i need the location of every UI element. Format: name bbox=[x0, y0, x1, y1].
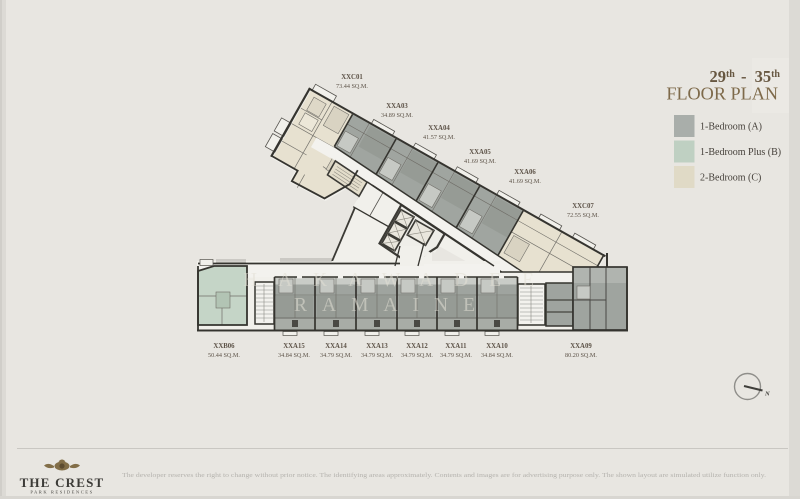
svg-text:XXA05: XXA05 bbox=[469, 149, 491, 156]
svg-text:XXA04: XXA04 bbox=[428, 125, 450, 132]
svg-text:34.79 SQ.M.: 34.79 SQ.M. bbox=[401, 352, 433, 359]
svg-text:PARK RESIDENCES: PARK RESIDENCES bbox=[30, 490, 93, 495]
svg-text:34.84 SQ.M.: 34.84 SQ.M. bbox=[481, 352, 513, 359]
svg-text:XXA10: XXA10 bbox=[486, 343, 508, 350]
svg-text:XXC07: XXC07 bbox=[572, 203, 594, 210]
svg-text:THE CREST: THE CREST bbox=[20, 475, 105, 490]
svg-text:41.69 SQ.M.: 41.69 SQ.M. bbox=[464, 158, 496, 165]
svg-text:1-Bedroom (A): 1-Bedroom (A) bbox=[700, 122, 762, 133]
svg-text:XXA06: XXA06 bbox=[514, 169, 536, 176]
svg-text:50.44 SQ.M.: 50.44 SQ.M. bbox=[208, 352, 240, 359]
svg-text:XXA11: XXA11 bbox=[445, 343, 467, 350]
svg-text:72.55 SQ.M.: 72.55 SQ.M. bbox=[567, 212, 599, 219]
svg-text:2-Bedroom (C): 2-Bedroom (C) bbox=[700, 173, 761, 184]
svg-text:The developer reserves the rig: The developer reserves the right to chan… bbox=[122, 472, 766, 479]
svg-text:41.69 SQ.M.: 41.69 SQ.M. bbox=[509, 178, 541, 185]
svg-text:XXB06: XXB06 bbox=[213, 343, 235, 350]
svg-text:1-Bedroom Plus (B): 1-Bedroom Plus (B) bbox=[700, 147, 781, 158]
svg-text:34.79 SQ.M.: 34.79 SQ.M. bbox=[440, 352, 472, 359]
svg-text:N: N bbox=[764, 391, 770, 398]
svg-text:RAMAINE: RAMAINE bbox=[294, 295, 490, 316]
svg-text:34.89 SQ.M.: 34.89 SQ.M. bbox=[381, 112, 413, 119]
svg-text:XXA03: XXA03 bbox=[386, 103, 408, 110]
svg-text:73.44 SQ.M.: 73.44 SQ.M. bbox=[336, 83, 368, 90]
svg-text:XXA15: XXA15 bbox=[283, 343, 305, 350]
svg-text:FLOOR PLAN: FLOOR PLAN bbox=[666, 84, 778, 104]
svg-text:XXA12: XXA12 bbox=[406, 343, 428, 350]
svg-text:XXC01: XXC01 bbox=[341, 74, 363, 81]
svg-text:34.79 SQ.M.: 34.79 SQ.M. bbox=[320, 352, 352, 359]
svg-text:XXA09: XXA09 bbox=[570, 343, 592, 350]
svg-text:34.84 SQ.M.: 34.84 SQ.M. bbox=[278, 352, 310, 359]
svg-text:34.79 SQ.M.: 34.79 SQ.M. bbox=[361, 352, 393, 359]
svg-text:XXA13: XXA13 bbox=[366, 343, 388, 350]
svg-text:XXA14: XXA14 bbox=[325, 343, 347, 350]
svg-text:HAKAWADEE: HAKAWADEE bbox=[243, 270, 555, 291]
svg-text:41.57 SQ.M.: 41.57 SQ.M. bbox=[423, 134, 455, 141]
svg-text:80.20 SQ.M.: 80.20 SQ.M. bbox=[565, 352, 597, 359]
